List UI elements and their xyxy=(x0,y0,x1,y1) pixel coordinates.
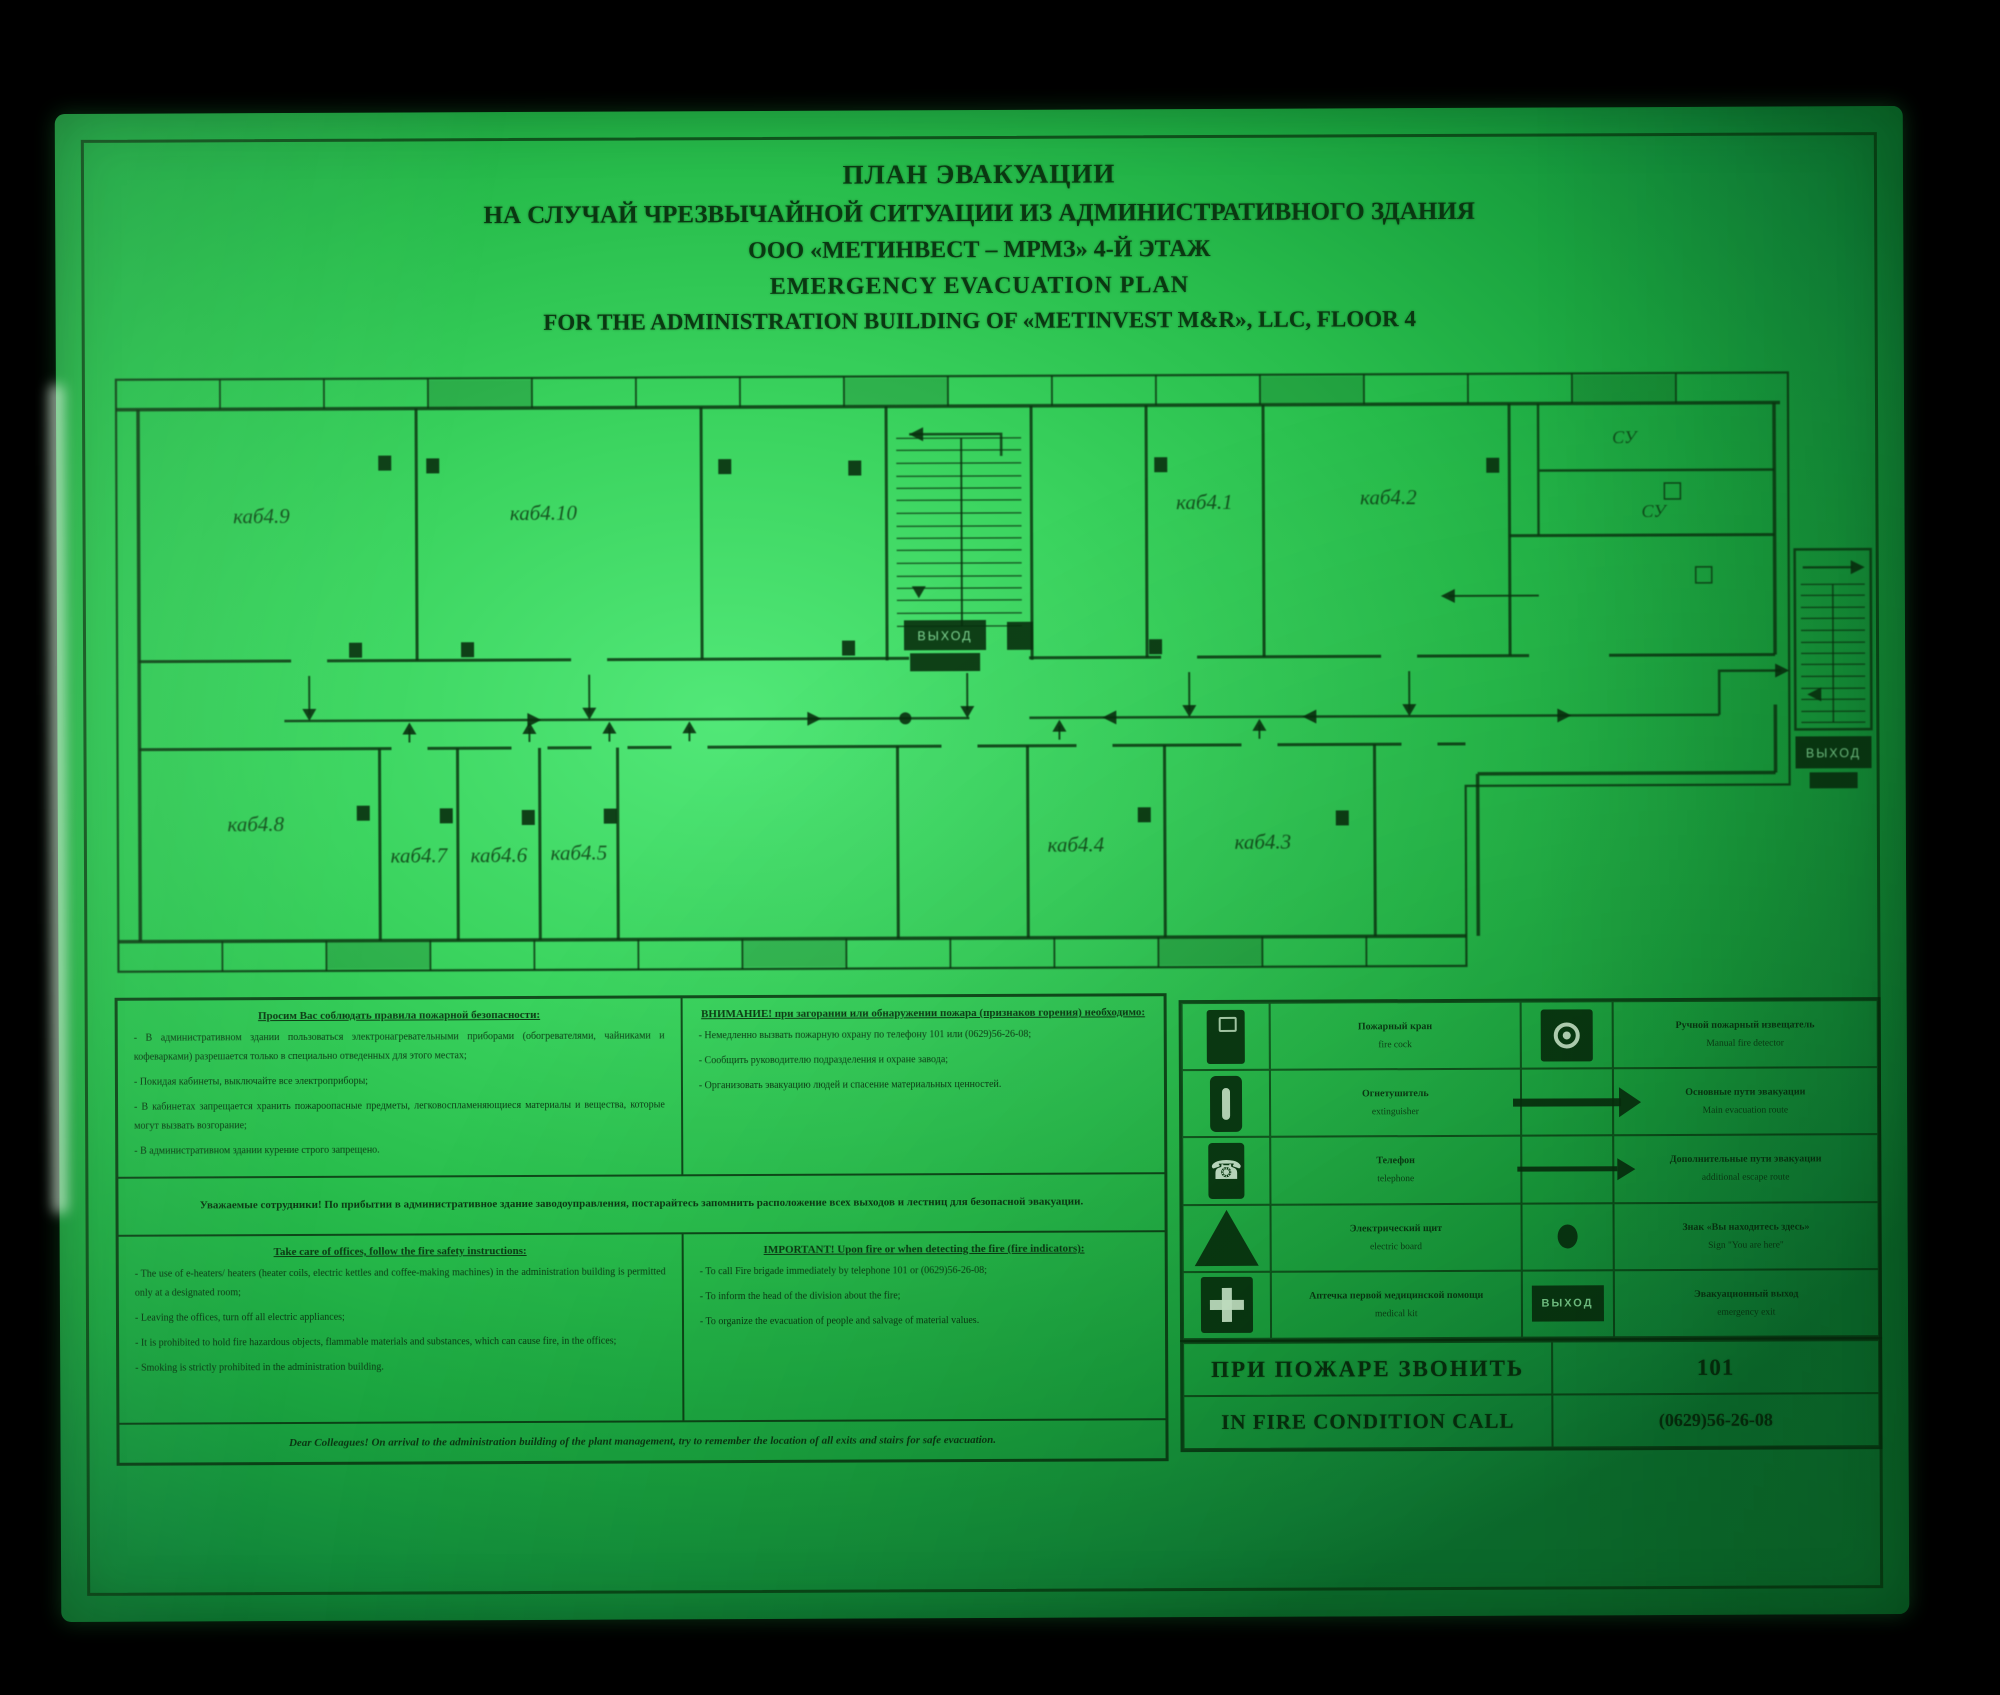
legend-icon-fire-hose-cabinet xyxy=(1182,1003,1270,1071)
legend-icon-electric-board xyxy=(1182,1204,1270,1272)
exit-sign-label: ВЫХОД xyxy=(1806,746,1861,760)
instruction-item: - В кабинетах запрещается хранить пожаро… xyxy=(134,1095,665,1135)
fire-call-ru-label: ПРИ ПОЖАРЕ ЗВОНИТЬ xyxy=(1183,1342,1552,1397)
legend-label-en: medical kit xyxy=(1375,1307,1418,1321)
legend-label-ru: Телефон xyxy=(1376,1153,1415,1168)
right-exit-sign: ВЫХОД xyxy=(1795,736,1871,788)
room-label-kab4-10: каб4.10 xyxy=(510,501,578,525)
instruction-item: - Leaving the offices, turn off all elec… xyxy=(135,1306,666,1327)
instructions-ru-actions-header: ВНИМАНИЕ! при загорании или обнаружении … xyxy=(698,1006,1147,1020)
legend-text-exit-sign: Эвакуационный выход emergency exit xyxy=(1613,1269,1879,1337)
room-label-kab4-4: каб4.4 xyxy=(1048,832,1105,856)
legend-text-fire-hose-cabinet: Пожарный кран fire cock xyxy=(1270,1002,1521,1070)
room-label-kab4-3: каб4.3 xyxy=(1235,830,1292,854)
legend-icon-fire-extinguisher xyxy=(1182,1070,1270,1138)
instruction-item: - To organize the evacuation of people a… xyxy=(700,1310,1149,1331)
legend-icon-exit-sign: ВЫХОД xyxy=(1521,1270,1613,1338)
room-label-su-2: СУ xyxy=(1641,501,1667,521)
instruction-item: - Сообщить руководителю подразделения и … xyxy=(699,1049,1148,1070)
instructions-en-actions: IMPORTANT! Upon fire or when detecting t… xyxy=(683,1232,1165,1420)
right-staircase xyxy=(1795,549,1872,729)
legend-icon-additional-route-arrow xyxy=(1521,1136,1613,1204)
instruction-item: - Немедленно вызвать пожарную охрану по … xyxy=(699,1024,1148,1045)
room-label-kab4-9: каб4.9 xyxy=(233,504,290,528)
instructions-en-actions-header: IMPORTANT! Upon fire or when detecting t… xyxy=(699,1242,1148,1256)
instructions-ru-rules-header: Просим Вас соблюдать правила пожарной бе… xyxy=(134,1008,665,1022)
legend-icon-manual-call-point xyxy=(1520,1001,1612,1069)
room-label-kab4-7: каб4.7 xyxy=(391,843,449,867)
legend-table: Пожарный кран fire cock Ручной пожарный … xyxy=(1179,997,1882,1342)
legend-text-manual-call-point: Ручной пожарный извещатель Manual fire d… xyxy=(1612,1000,1878,1068)
legend-label-en: electric board xyxy=(1370,1240,1422,1254)
legend-label-ru: Основные пути эвакуации xyxy=(1685,1085,1805,1101)
instructions-en-rules: Take care of offices, follow the fire sa… xyxy=(119,1234,685,1422)
legend-icon-telephone: ☎ xyxy=(1182,1137,1270,1205)
instruction-item: - To inform the head of the division abo… xyxy=(700,1285,1149,1306)
you-are-here-dot xyxy=(899,712,911,724)
legend-text-electric-board: Электрический щит electric board xyxy=(1270,1203,1521,1271)
central-exit-sign: ВЫХОД xyxy=(904,620,1033,672)
legend-text-main-route: Основные пути эвакуации Main evacuation … xyxy=(1613,1067,1879,1135)
legend-text-first-aid-kit: Аптечка первой медицинской помощи medica… xyxy=(1271,1270,1522,1338)
legend-label-en: extinguisher xyxy=(1372,1105,1419,1119)
legend-label-ru: Огнетушитель xyxy=(1362,1086,1429,1101)
room-label-kab4-8: каб4.8 xyxy=(227,812,284,836)
room-label-kab4-1: каб4.1 xyxy=(1176,490,1233,514)
legend-label-en: additional escape route xyxy=(1702,1171,1790,1186)
fire-call-en-number: (0629)56-26-08 xyxy=(1552,1393,1879,1447)
legend-icon-main-route-arrow xyxy=(1521,1068,1613,1136)
instructions-block: Просим Вас соблюдать правила пожарной бе… xyxy=(115,993,1169,1466)
legend-label-ru: Знак «Вы находитесь здесь» xyxy=(1682,1219,1809,1235)
instructions-ru: Просим Вас соблюдать правила пожарной бе… xyxy=(118,996,1165,1179)
fire-call-en-label: IN FIRE CONDITION CALL xyxy=(1183,1395,1552,1450)
instructions-en-rules-header: Take care of offices, follow the fire sa… xyxy=(135,1244,666,1258)
instructions-ru-actions: ВНИМАНИЕ! при загорании или обнаружении … xyxy=(682,996,1164,1174)
evacuation-sign-plate: ПЛАН ЭВАКУАЦИИ НА СЛУЧАЙ ЧРЕЗВЫЧАЙНОЙ СИ… xyxy=(55,106,1910,1622)
instruction-item: - Покидая кабинеты, выключайте все элект… xyxy=(134,1070,665,1091)
legend-label-ru: Дополнительные пути эвакуации xyxy=(1670,1152,1822,1168)
instruction-item: - To call Fire brigade immediately by te… xyxy=(700,1260,1149,1281)
instruction-item: - В административном здании курение стро… xyxy=(134,1139,665,1160)
exit-sign-label: ВЫХОД xyxy=(917,629,972,643)
fixture-symbols xyxy=(1664,483,1711,583)
room-label-kab4-2: каб4.2 xyxy=(1360,485,1417,509)
legend-text-telephone: Телефон telephone xyxy=(1270,1136,1521,1204)
instructions-en: Take care of offices, follow the fire sa… xyxy=(119,1232,1166,1425)
legend-icon-you-are-here xyxy=(1521,1203,1613,1271)
legend-label-ru: Аптечка первой медицинской помощи xyxy=(1309,1288,1483,1304)
legend-text-additional-route: Дополнительные пути эвакуации additional… xyxy=(1613,1134,1879,1202)
instruction-item: - Smoking is strictly prohibited in the … xyxy=(135,1356,666,1377)
instructions-ru-footer: Уважаемые сотрудники! По прибытии в адми… xyxy=(118,1174,1164,1237)
photo-background: ПЛАН ЭВАКУАЦИИ НА СЛУЧАЙ ЧРЕЗВЫЧАЙНОЙ СИ… xyxy=(0,0,2000,1695)
legend-label-en: Sign "You are here" xyxy=(1708,1238,1784,1253)
legend-label-en: emergency exit xyxy=(1717,1305,1775,1320)
evacuation-route xyxy=(284,587,1790,743)
instruction-item: - В административном здании пользоваться… xyxy=(134,1026,665,1066)
fire-call-table: ПРИ ПОЖАРЕ ЗВОНИТЬ 101 IN FIRE CONDITION… xyxy=(1180,1337,1882,1452)
instruction-item: - Организовать эвакуацию людей и спасени… xyxy=(699,1074,1148,1095)
instruction-item: - It is prohibited to hold fire hazardou… xyxy=(135,1331,666,1352)
legend-label-ru: Ручной пожарный извещатель xyxy=(1675,1017,1814,1033)
legend-label-ru: Электрический щит xyxy=(1350,1221,1442,1236)
legend-label-ru: Эвакуационный выход xyxy=(1694,1286,1798,1301)
legend-text-fire-extinguisher: Огнетушитель extinguisher xyxy=(1270,1069,1521,1137)
room-label-su-1: СУ xyxy=(1612,427,1638,447)
legend-text-you-are-here: Знак «Вы находитесь здесь» Sign "You are… xyxy=(1613,1202,1879,1270)
legend-label-en: Main evacuation route xyxy=(1703,1104,1789,1119)
window-shading xyxy=(324,375,1679,969)
room-label-kab4-5: каб4.5 xyxy=(551,841,608,865)
legend-label-en: Manual fire detector xyxy=(1706,1036,1784,1051)
instructions-en-footer: Dear Colleagues! On arrival to the admin… xyxy=(119,1420,1165,1463)
floor-plan: ВЫХОД ВЫХОД xyxy=(107,284,1900,992)
instructions-ru-rules: Просим Вас соблюдать правила пожарной бе… xyxy=(118,998,684,1176)
room-label-kab4-6: каб4.6 xyxy=(471,843,528,867)
fire-call-ru-number: 101 xyxy=(1552,1340,1879,1394)
legend-label-en: fire cock xyxy=(1378,1038,1412,1052)
legend-icon-first-aid-kit xyxy=(1183,1272,1271,1340)
legend-label-en: telephone xyxy=(1377,1172,1414,1186)
legend-label-ru: Пожарный кран xyxy=(1358,1019,1432,1034)
instruction-item: - The use of e-heaters/ heaters (heater … xyxy=(135,1262,666,1302)
